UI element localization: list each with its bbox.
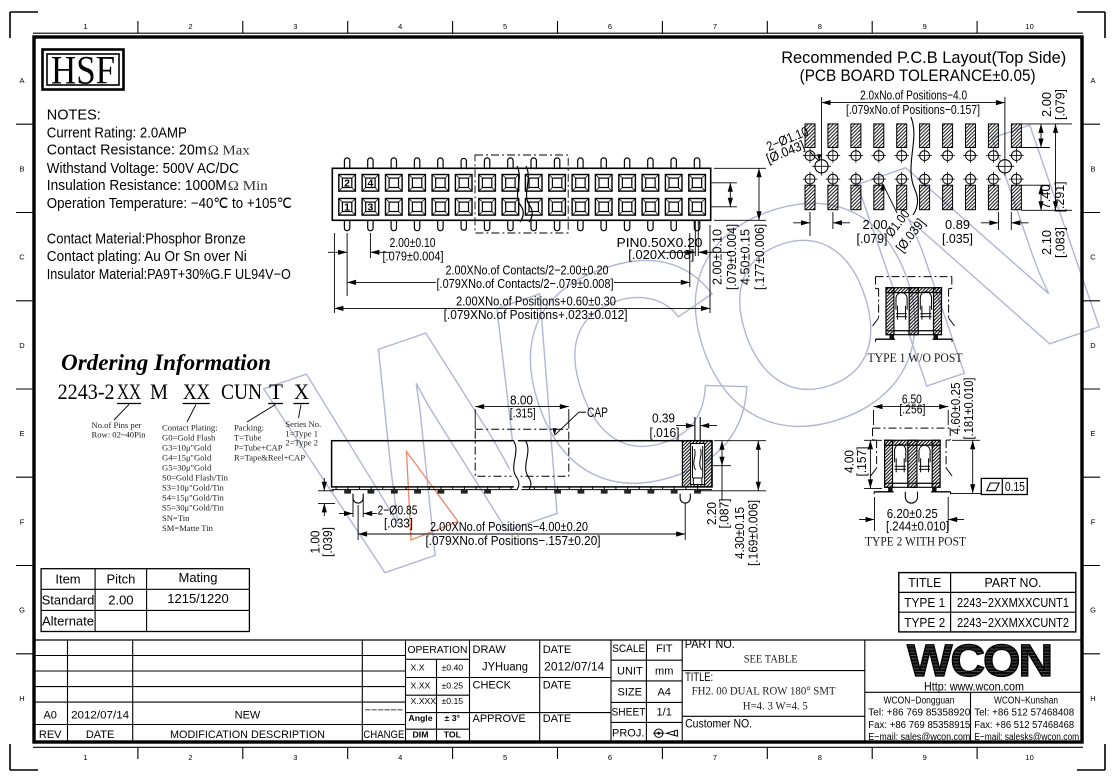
svg-text:S5=30μ"Gold/Tin: S5=30μ"Gold/Tin bbox=[162, 503, 225, 513]
svg-text:C: C bbox=[1090, 253, 1096, 262]
svg-text:4.50±0.15: 4.50±0.15 bbox=[738, 229, 753, 285]
svg-text:±0.15: ±0.15 bbox=[441, 696, 463, 706]
svg-text:CAP: CAP bbox=[587, 405, 608, 420]
svg-text:Insulation Resistance: 1000M: Insulation Resistance: 1000M bbox=[47, 178, 227, 194]
svg-text:Mating: Mating bbox=[178, 570, 217, 585]
svg-text:7: 7 bbox=[713, 22, 717, 31]
svg-text:5: 5 bbox=[503, 753, 507, 762]
svg-text:4: 4 bbox=[398, 753, 402, 762]
svg-text:Pitch: Pitch bbox=[106, 572, 135, 587]
svg-text:WCON: WCON bbox=[907, 635, 1051, 686]
svg-text:T=Tube: T=Tube bbox=[234, 432, 262, 442]
svg-text:2243-2: 2243-2 bbox=[58, 379, 115, 404]
svg-text:H=4. 3 W=4. 5: H=4. 3 W=4. 5 bbox=[743, 700, 808, 712]
svg-text:5: 5 bbox=[503, 22, 507, 31]
svg-text:10: 10 bbox=[1025, 22, 1033, 31]
svg-text:No.of Pins per: No.of Pins per bbox=[92, 420, 142, 430]
svg-text:mm: mm bbox=[655, 665, 673, 677]
svg-text:OPERATION: OPERATION bbox=[408, 644, 468, 656]
svg-text:Current Rating: 2.0AMP: Current Rating: 2.0AMP bbox=[47, 125, 187, 141]
svg-text:3: 3 bbox=[293, 753, 297, 762]
svg-text:9: 9 bbox=[923, 753, 927, 762]
svg-text:PART NO.: PART NO. bbox=[685, 639, 735, 651]
svg-text:0.15: 0.15 bbox=[1005, 479, 1025, 494]
svg-text:MODIFICATION DESCRIPTION: MODIFICATION DESCRIPTION bbox=[170, 729, 325, 741]
svg-text:E: E bbox=[19, 429, 24, 438]
svg-text:[.079±0.004]: [.079±0.004] bbox=[383, 249, 444, 264]
svg-text:CHANGE: CHANGE bbox=[363, 729, 404, 741]
svg-text:[.033]: [.033] bbox=[384, 516, 413, 531]
svg-text:UNIT: UNIT bbox=[617, 665, 643, 677]
svg-text:S4=15μ"Gold/Tin: S4=15μ"Gold/Tin bbox=[162, 493, 225, 503]
svg-text:[.035]: [.035] bbox=[942, 231, 973, 246]
svg-text:TYPE 2 WITH POST: TYPE 2 WITH POST bbox=[865, 535, 966, 549]
svg-text:XX: XX bbox=[183, 379, 210, 404]
svg-text:F: F bbox=[20, 517, 25, 526]
svg-text:E: E bbox=[1090, 429, 1095, 438]
svg-text:SN=Tin: SN=Tin bbox=[162, 513, 190, 523]
svg-text:A4: A4 bbox=[657, 686, 670, 698]
svg-text:[.087]: [.087] bbox=[717, 499, 732, 529]
svg-text:[.079xNo.of Positions−0.157]: [.079xNo.of Positions−0.157] bbox=[846, 102, 980, 117]
svg-text:Customer NO.: Customer NO. bbox=[685, 719, 752, 731]
svg-text:PROJ.: PROJ. bbox=[612, 728, 644, 740]
svg-text:Withstand Voltage: 500V AC/DC: Withstand Voltage: 500V AC/DC bbox=[47, 161, 239, 177]
svg-text:G5=30μ"Gold: G5=30μ"Gold bbox=[162, 463, 212, 473]
svg-text:6: 6 bbox=[608, 753, 612, 762]
svg-text:P=Tube+CAP: P=Tube+CAP bbox=[234, 442, 283, 452]
svg-text:B: B bbox=[1090, 164, 1095, 173]
svg-text:TOL: TOL bbox=[444, 730, 462, 740]
svg-text:B: B bbox=[19, 164, 24, 173]
svg-text:Insulator Material:PA9T+30%G.F: Insulator Material:PA9T+30%G.F UL94V−O bbox=[47, 267, 291, 283]
svg-text:Contact Material:Phosphor Bron: Contact Material:Phosphor Bronze bbox=[47, 232, 246, 248]
svg-text:± 3°: ± 3° bbox=[445, 713, 461, 723]
svg-text:APPROVE: APPROVE bbox=[473, 713, 526, 725]
svg-text:E−mail: salesks@wcon.com: E−mail: salesks@wcon.com bbox=[974, 732, 1079, 743]
svg-text:2012/07/14: 2012/07/14 bbox=[71, 710, 129, 722]
svg-text:[.079XNo.of Contacts/2−.079±0.: [.079XNo.of Contacts/2−.079±0.008] bbox=[437, 276, 614, 291]
svg-text:A0: A0 bbox=[43, 710, 56, 722]
svg-text:Item: Item bbox=[55, 572, 80, 587]
svg-text:Alternate: Alternate bbox=[42, 614, 94, 629]
svg-text:[.315]: [.315] bbox=[510, 406, 536, 421]
svg-text:DATE: DATE bbox=[543, 644, 572, 656]
svg-text:Standard: Standard bbox=[42, 593, 95, 608]
svg-text:TYPE 1: TYPE 1 bbox=[904, 595, 945, 610]
svg-text:[.256]: [.256] bbox=[899, 402, 925, 417]
svg-text:(PCB BOARD TOLERANCE±0.05): (PCB BOARD TOLERANCE±0.05) bbox=[800, 66, 1036, 85]
svg-text:F: F bbox=[1091, 517, 1096, 526]
svg-text:D: D bbox=[1090, 341, 1096, 350]
svg-text:H: H bbox=[19, 694, 24, 703]
svg-text:T: T bbox=[269, 379, 284, 404]
svg-text:[.020X.008]: [.020X.008] bbox=[628, 247, 694, 262]
svg-text:SHEET: SHEET bbox=[612, 707, 646, 719]
svg-text:2: 2 bbox=[188, 753, 192, 762]
svg-text:[.079]: [.079] bbox=[857, 231, 888, 246]
svg-text:[.079]: [.079] bbox=[1053, 89, 1068, 120]
svg-text:−−−−−−: −−−−−− bbox=[365, 705, 404, 717]
svg-text:D: D bbox=[19, 341, 25, 350]
svg-text:A: A bbox=[1090, 76, 1095, 85]
svg-text:10: 10 bbox=[1025, 753, 1033, 762]
svg-text:Contact plating: Au Or Sn over: Contact plating: Au Or Sn over Ni bbox=[47, 249, 247, 265]
svg-text:TITLE:: TITLE: bbox=[685, 672, 713, 684]
svg-text:Fax: +86 512 57468468: Fax: +86 512 57468468 bbox=[974, 720, 1074, 731]
svg-text:CHECK: CHECK bbox=[473, 679, 512, 691]
svg-text:[.016]: [.016] bbox=[650, 425, 680, 440]
svg-text:NEW: NEW bbox=[235, 710, 261, 722]
svg-text:S0=Gold Flash/Tin: S0=Gold Flash/Tin bbox=[162, 473, 229, 483]
svg-text:R=Tape&Reel+CAP: R=Tape&Reel+CAP bbox=[234, 452, 305, 462]
svg-text:4: 4 bbox=[367, 178, 373, 190]
svg-text:H: H bbox=[1090, 694, 1095, 703]
svg-text:SIZE: SIZE bbox=[618, 686, 642, 698]
svg-text:Tel: +86 769 85358920: Tel: +86 769 85358920 bbox=[868, 708, 970, 719]
svg-text:[.291]: [.291] bbox=[1052, 181, 1067, 212]
svg-text:6: 6 bbox=[608, 22, 612, 31]
svg-text:G0=Gold Flash: G0=Gold Flash bbox=[162, 432, 216, 442]
svg-text:Contact Resistance: 20m: Contact Resistance: 20m bbox=[47, 142, 207, 158]
svg-text:Recommended P.C.B Layout(Top S: Recommended P.C.B Layout(Top Side) bbox=[781, 48, 1066, 67]
svg-text:9: 9 bbox=[923, 22, 927, 31]
svg-text:A: A bbox=[19, 76, 24, 85]
svg-text:[.039]: [.039] bbox=[320, 527, 335, 557]
svg-text:DIM: DIM bbox=[413, 730, 429, 740]
svg-text:E−mail: sales@wcon.com: E−mail: sales@wcon.com bbox=[868, 732, 970, 743]
svg-text:[.181±0.010]: [.181±0.010] bbox=[961, 378, 976, 440]
svg-text:±0.25: ±0.25 bbox=[441, 680, 463, 690]
svg-text:0.89: 0.89 bbox=[945, 217, 970, 232]
svg-text:XX: XX bbox=[117, 379, 141, 404]
svg-text:SM=Matte Tin: SM=Matte Tin bbox=[162, 523, 214, 533]
svg-text:[.083]: [.083] bbox=[1053, 227, 1068, 258]
svg-text:FH2. 00 DUAL ROW 180° SMT: FH2. 00 DUAL ROW 180° SMT bbox=[692, 686, 836, 698]
svg-text:DATE: DATE bbox=[543, 713, 572, 725]
svg-text:2243−2XXMXXCUNT2: 2243−2XXMXXCUNT2 bbox=[957, 615, 1069, 630]
svg-text:FIT: FIT bbox=[656, 643, 673, 655]
svg-text:TYPE 2: TYPE 2 bbox=[904, 615, 945, 630]
svg-text:WCON−Dongguan: WCON−Dongguan bbox=[884, 696, 955, 707]
svg-text:Contact Plating:: Contact Plating: bbox=[162, 422, 218, 432]
svg-text:HSF: HSF bbox=[51, 48, 115, 93]
svg-text:2.00±0.10: 2.00±0.10 bbox=[710, 229, 725, 285]
svg-text:DRAW: DRAW bbox=[473, 644, 507, 656]
svg-text:S3=10μ"Gold/Tin: S3=10μ"Gold/Tin bbox=[162, 483, 225, 493]
svg-text:JYHuang: JYHuang bbox=[482, 662, 528, 674]
svg-text:Http: www.wcon.com: Http: www.wcon.com bbox=[924, 682, 1024, 694]
svg-text:2.0xNo.of Positions−4.0: 2.0xNo.of Positions−4.0 bbox=[860, 87, 967, 102]
svg-text:Fax: +86 769 85358915: Fax: +86 769 85358915 bbox=[868, 720, 970, 731]
svg-text:[.079XNo.of Positions−.157±0.2: [.079XNo.of Positions−.157±0.20] bbox=[426, 533, 601, 548]
svg-text:1: 1 bbox=[83, 22, 87, 31]
svg-text:REV: REV bbox=[39, 729, 62, 741]
svg-text:Operation Temperature: −40℃ t: Operation Temperature: −40℃ to +105℃ bbox=[47, 196, 292, 212]
svg-text:2: 2 bbox=[344, 178, 350, 190]
svg-text:Ordering Information: Ordering Information bbox=[61, 350, 271, 376]
svg-text:C: C bbox=[19, 253, 25, 262]
svg-text:[.157]: [.157] bbox=[854, 447, 869, 477]
svg-text:1: 1 bbox=[83, 753, 87, 762]
svg-text:Packing:: Packing: bbox=[234, 422, 264, 432]
svg-text:TITLE: TITLE bbox=[908, 575, 941, 590]
svg-text:M: M bbox=[150, 379, 168, 404]
svg-text:Tel: +86 512 57468408: Tel: +86 512 57468408 bbox=[974, 708, 1074, 719]
svg-text:Ω Max: Ω Max bbox=[208, 143, 250, 158]
svg-text:CUN: CUN bbox=[221, 379, 262, 404]
svg-text:G: G bbox=[1090, 606, 1096, 615]
svg-text:G: G bbox=[19, 606, 25, 615]
svg-text:Row: 02~40Pin: Row: 02~40Pin bbox=[92, 430, 147, 440]
svg-text:8: 8 bbox=[818, 22, 822, 31]
svg-text:7: 7 bbox=[713, 753, 717, 762]
svg-text:0.39: 0.39 bbox=[652, 411, 675, 426]
svg-text:2=Type 2: 2=Type 2 bbox=[285, 438, 318, 448]
svg-text:WCON−Kunshan: WCON−Kunshan bbox=[994, 696, 1058, 707]
svg-text:±0.40: ±0.40 bbox=[441, 663, 463, 673]
svg-text:7.40: 7.40 bbox=[1038, 184, 1053, 209]
svg-text:DATE: DATE bbox=[543, 679, 572, 691]
svg-text:[.177±0.006]: [.177±0.006] bbox=[752, 224, 767, 290]
svg-text:DATE: DATE bbox=[86, 729, 115, 741]
svg-text:G3=10μ"Gold: G3=10μ"Gold bbox=[162, 442, 212, 452]
svg-text:1215/1220: 1215/1220 bbox=[167, 591, 228, 606]
svg-text:2243−2XXMXXCUNT1: 2243−2XXMXXCUNT1 bbox=[957, 595, 1069, 610]
svg-text:3: 3 bbox=[293, 22, 297, 31]
svg-text:2012/07/14: 2012/07/14 bbox=[544, 662, 605, 674]
svg-text:[.169±0.006]: [.169±0.006] bbox=[746, 500, 761, 566]
svg-text:8: 8 bbox=[818, 753, 822, 762]
svg-text:2.00: 2.00 bbox=[108, 593, 133, 608]
svg-text:X.X: X.X bbox=[411, 663, 425, 673]
svg-text:X.XX: X.XX bbox=[411, 680, 431, 690]
svg-text:2: 2 bbox=[188, 22, 192, 31]
svg-text:[.079XNo.of Positions+.023±0.0: [.079XNo.of Positions+.023±0.012] bbox=[444, 307, 628, 322]
svg-text:Angle: Angle bbox=[408, 713, 432, 723]
svg-text:PART NO.: PART NO. bbox=[985, 575, 1042, 590]
svg-text:NOTES:: NOTES: bbox=[47, 108, 101, 124]
svg-text:SEE TABLE: SEE TABLE bbox=[744, 654, 798, 666]
svg-text:SCALE: SCALE bbox=[612, 643, 645, 655]
svg-text:3: 3 bbox=[367, 202, 373, 214]
svg-text:G4=15μ"Gold: G4=15μ"Gold bbox=[162, 452, 212, 462]
svg-text:4: 4 bbox=[398, 22, 402, 31]
svg-text:1: 1 bbox=[344, 202, 350, 214]
svg-text:X: X bbox=[294, 379, 309, 404]
svg-text:X.XXX: X.XXX bbox=[411, 696, 437, 706]
svg-text:1/1: 1/1 bbox=[657, 707, 672, 719]
svg-text:2.00XNo.of Positions−4.00±0.20: 2.00XNo.of Positions−4.00±0.20 bbox=[430, 519, 588, 534]
svg-text:Ω Min: Ω Min bbox=[228, 179, 268, 194]
svg-text:TYPE 1 W/O POST: TYPE 1 W/O POST bbox=[868, 351, 963, 365]
svg-text:[.244±0.010]: [.244±0.010] bbox=[886, 519, 949, 534]
